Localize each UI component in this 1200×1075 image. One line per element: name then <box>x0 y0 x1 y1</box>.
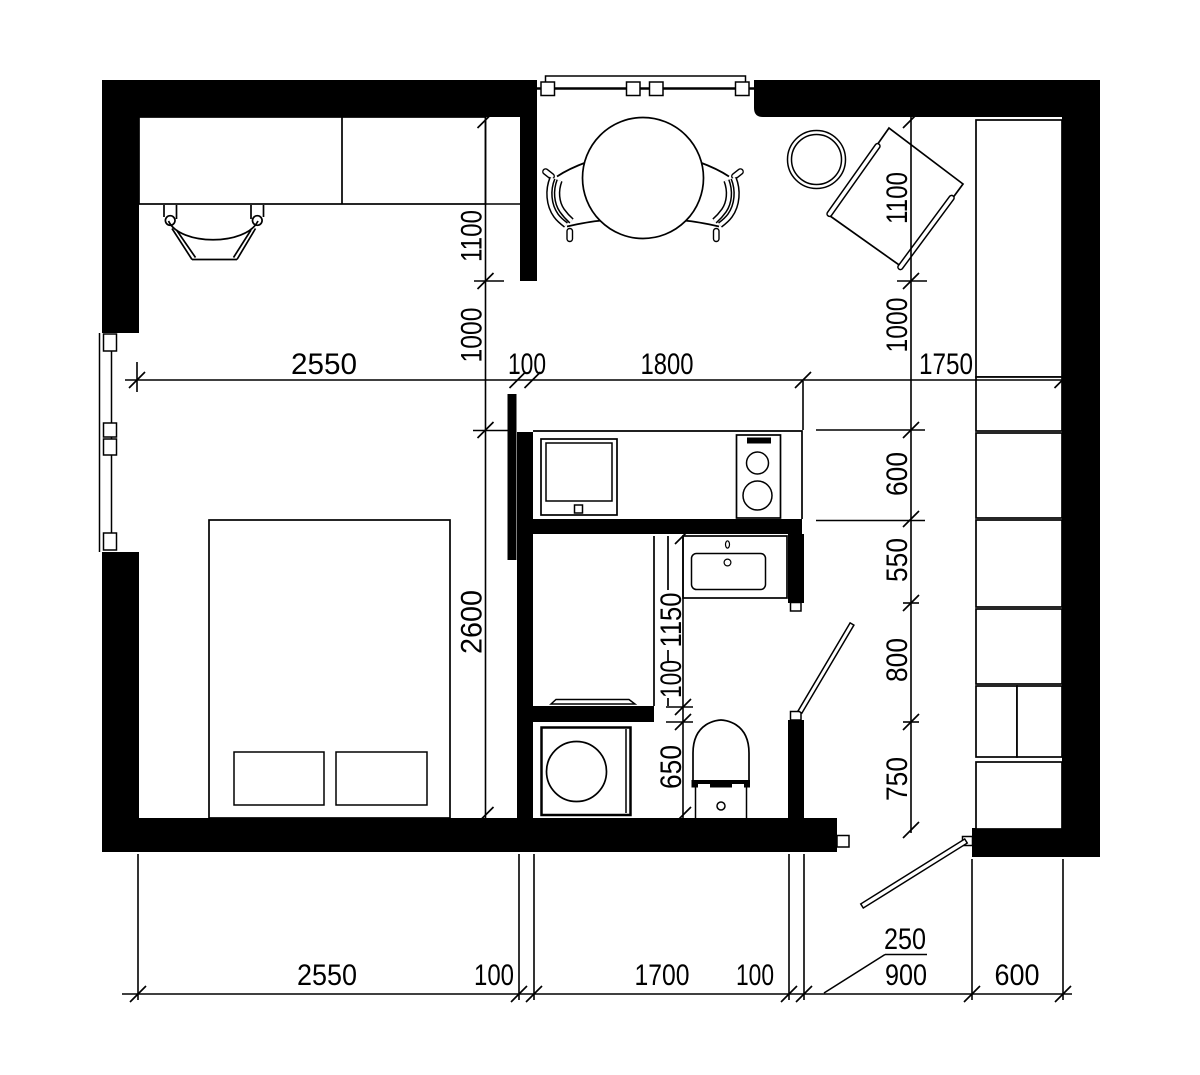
svg-text:750: 750 <box>881 757 914 801</box>
svg-text:2550: 2550 <box>291 348 357 381</box>
svg-text:1100: 1100 <box>456 210 489 262</box>
svg-text:800: 800 <box>881 638 914 682</box>
svg-text:100: 100 <box>736 959 774 992</box>
svg-text:2550: 2550 <box>297 959 357 992</box>
svg-text:600: 600 <box>881 452 914 496</box>
svg-text:550: 550 <box>881 538 914 582</box>
svg-text:600: 600 <box>995 959 1040 992</box>
svg-text:650: 650 <box>655 745 688 789</box>
svg-text:100: 100 <box>655 660 688 698</box>
svg-text:250: 250 <box>884 923 926 956</box>
svg-text:1000: 1000 <box>881 298 914 353</box>
svg-text:2600: 2600 <box>456 590 489 654</box>
svg-text:1000: 1000 <box>456 308 489 363</box>
svg-text:1150: 1150 <box>655 593 688 648</box>
svg-text:1800: 1800 <box>641 348 694 381</box>
svg-text:1100: 1100 <box>881 172 914 224</box>
svg-text:900: 900 <box>885 959 927 992</box>
svg-text:1750: 1750 <box>919 348 973 381</box>
svg-text:100: 100 <box>474 959 514 992</box>
svg-text:1700: 1700 <box>635 959 690 992</box>
svg-text:100: 100 <box>508 348 546 381</box>
